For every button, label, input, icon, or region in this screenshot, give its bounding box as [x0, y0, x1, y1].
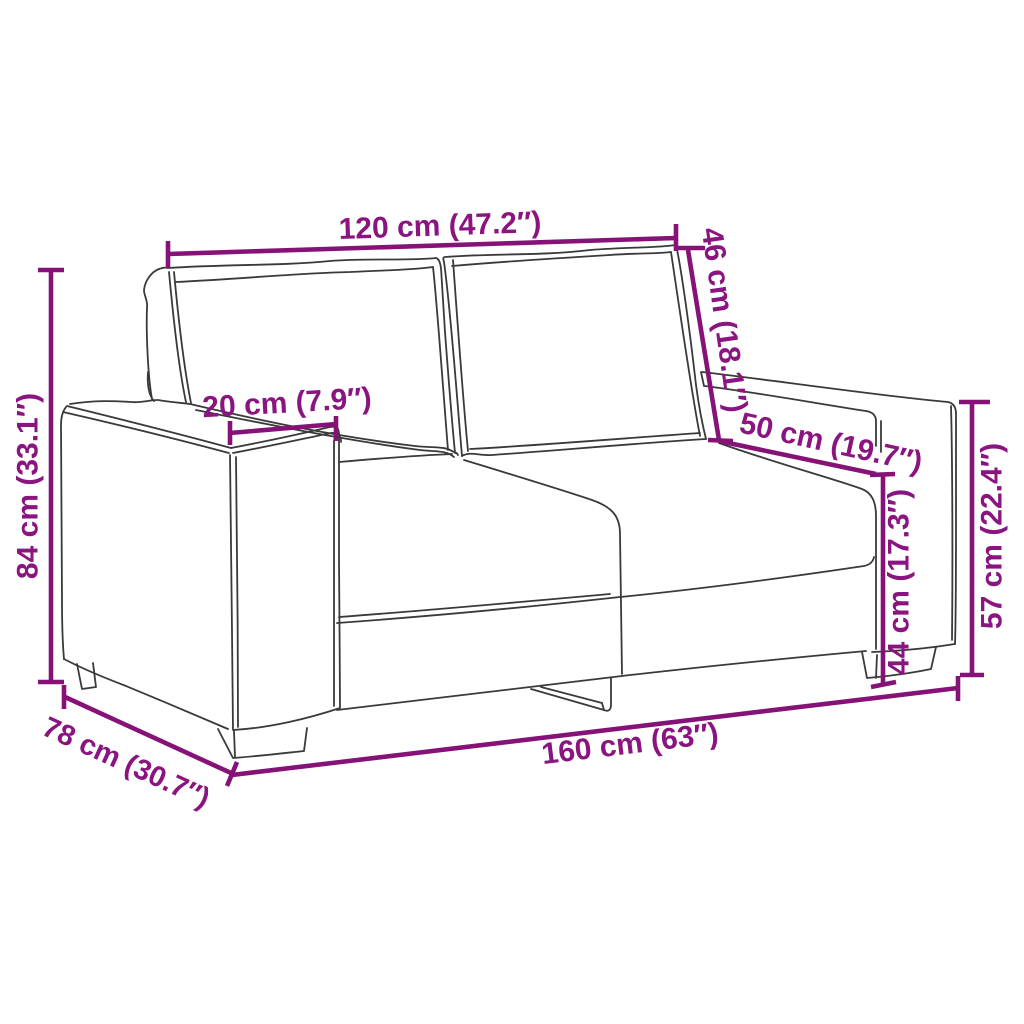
svg-text:120 cm (47.2″): 120 cm (47.2″): [338, 206, 542, 246]
svg-text:20 cm (7.9″): 20 cm (7.9″): [201, 382, 372, 424]
svg-text:44 cm (17.3″): 44 cm (17.3″): [883, 489, 916, 675]
svg-text:57 cm (22.4″): 57 cm (22.4″): [976, 443, 1009, 629]
svg-text:50 cm (19.7″): 50 cm (19.7″): [737, 407, 926, 480]
svg-text:84 cm (33.1″): 84 cm (33.1″): [12, 393, 45, 579]
